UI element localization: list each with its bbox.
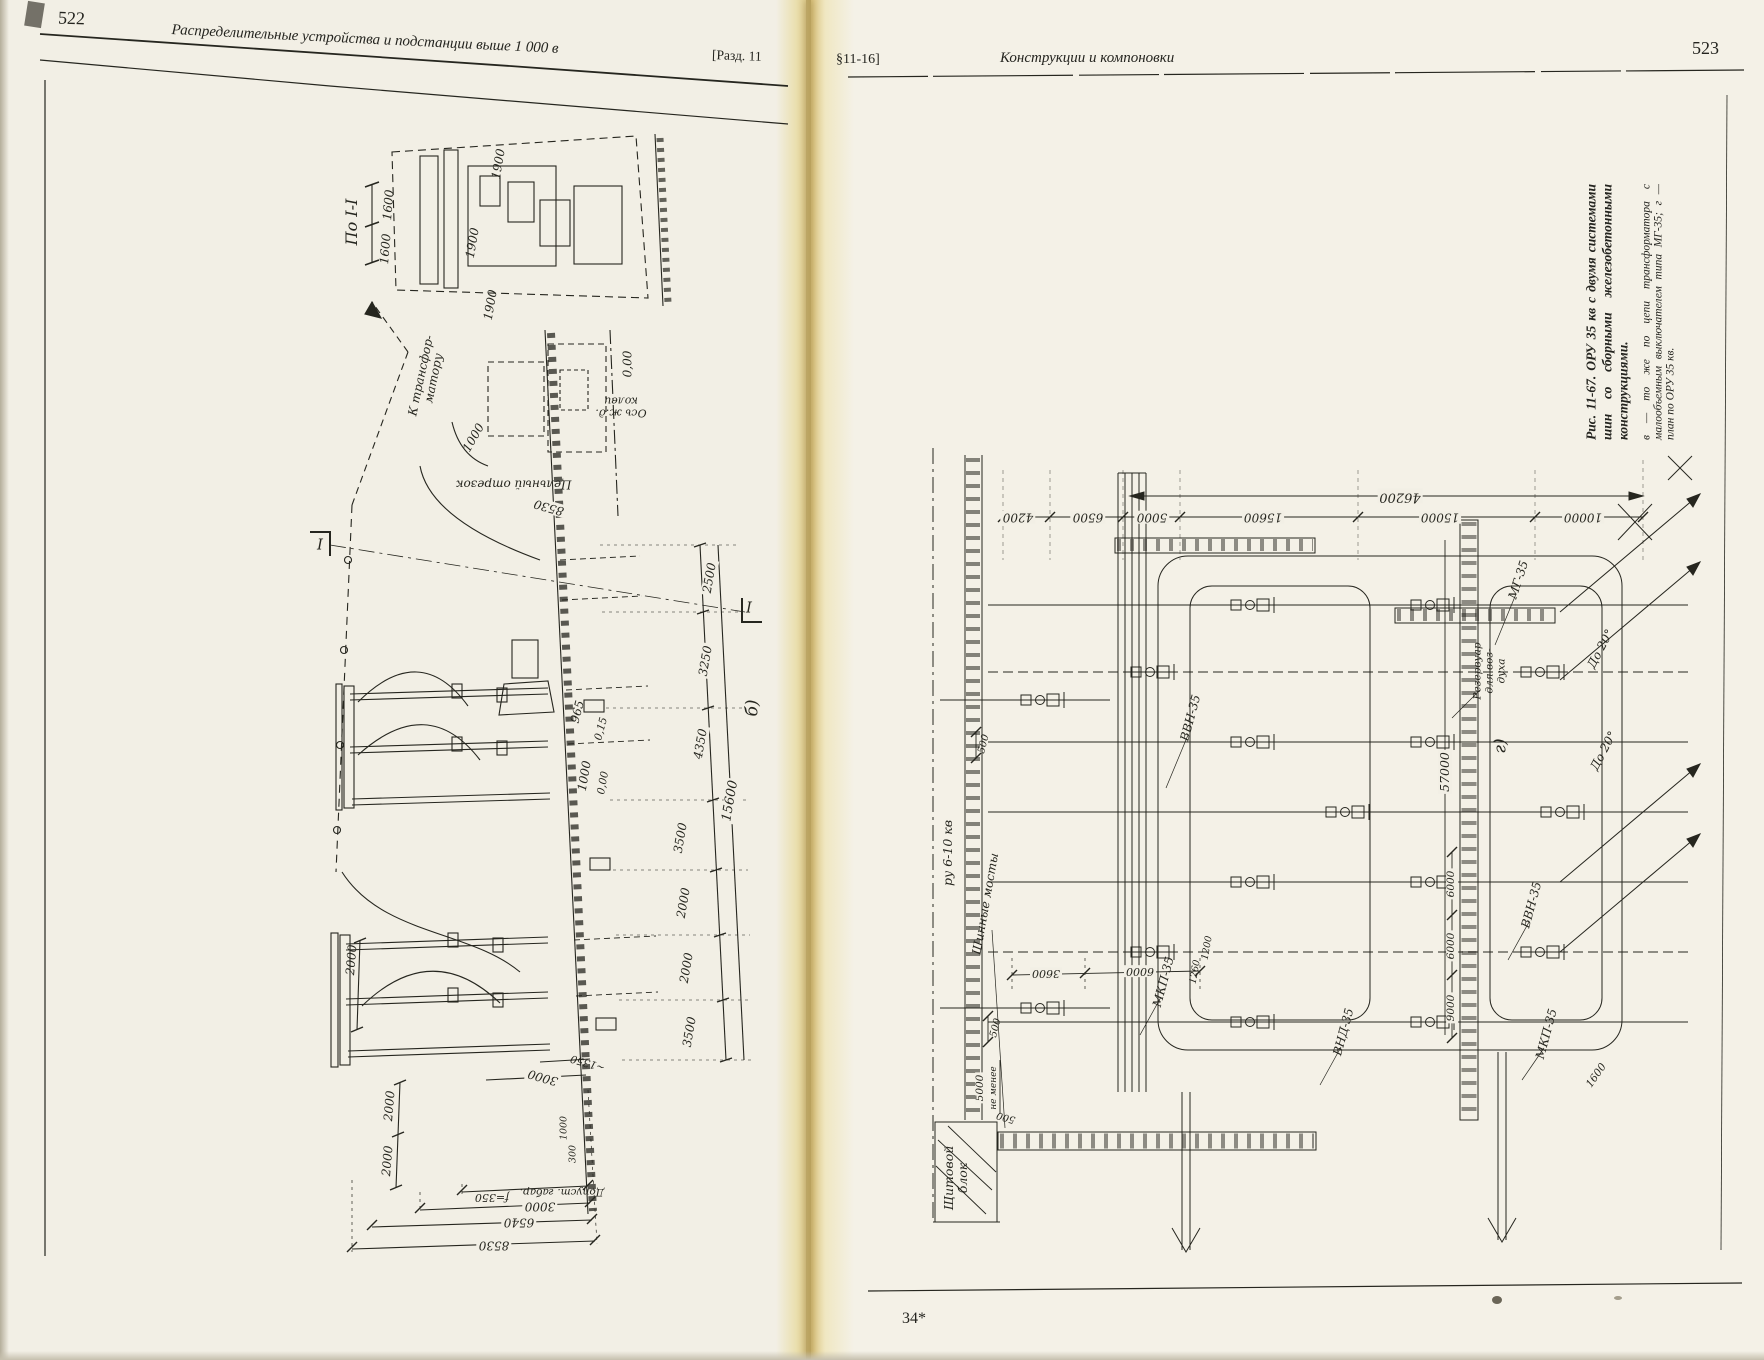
right-page-number: 523 — [1692, 38, 1719, 59]
building-label: ру 6-10 кв — [941, 820, 955, 886]
dim-note: не менее — [989, 1066, 999, 1109]
dim-label: 15600 — [1242, 510, 1284, 523]
figure-caption: Рис. 11-67. ОРУ 35 кв с двумя системами … — [1584, 184, 1677, 440]
part-label-g: г) — [1491, 738, 1510, 753]
scan-speck — [1492, 1296, 1502, 1304]
dim-label: 6500 — [1071, 510, 1106, 523]
dim-label: 2000 — [344, 944, 360, 976]
scan-edge-left — [0, 0, 9, 1360]
caption-main: Рис. 11-67. ОРУ 35 кв с двумя системами … — [1584, 184, 1632, 440]
dim-total-label: 46200 — [1377, 489, 1422, 504]
clearance-note: Допуст. габар. — [520, 1185, 605, 1197]
dim-label: 5000 — [1135, 510, 1170, 523]
scan-edge-bottom — [0, 1351, 1764, 1360]
book-gutter — [776, 0, 854, 1360]
caption-sub: в — то же по цепи трансформатора с малоо… — [1641, 184, 1677, 440]
dim-label: f=350 — [475, 1191, 509, 1203]
dim-label: 6000 — [1446, 869, 1458, 900]
dim-label: 10000 — [1562, 510, 1604, 523]
right-running-title: Конструкции и компоновки — [1000, 50, 1174, 67]
dim-label: 5000 — [975, 1073, 987, 1104]
view-label: По I-I — [343, 199, 361, 246]
dim-label: 6000 — [1446, 931, 1458, 962]
dim-label: 4200 — [1001, 510, 1036, 523]
dim-label: 9000 — [1446, 993, 1458, 1024]
dim-label: 8530 — [477, 1238, 512, 1251]
dim-total-label: 57000 — [1438, 750, 1452, 794]
section-mark: I — [746, 600, 752, 617]
level-mark: 0,00 — [621, 351, 634, 378]
dim-label: 1600 — [378, 233, 394, 265]
dim-label: 1600 — [381, 189, 397, 221]
right-section-ref: §11-16] — [836, 52, 880, 68]
left-page — [0, 0, 800, 1360]
left-page-number: 522 — [58, 8, 86, 30]
dim-label: 3000 — [523, 1199, 558, 1212]
dim-label: 1000 — [560, 1116, 571, 1140]
dim-label: 6540 — [502, 1215, 537, 1228]
dim-label: 2000 — [382, 1090, 398, 1122]
solid-section-note: Цельный отрезок — [456, 477, 571, 490]
scan-speck — [1614, 1296, 1622, 1300]
gutter-crease — [806, 0, 811, 1360]
rail-axis-note: Ось ж.д. колеи — [595, 394, 646, 419]
dim-label: 15000 — [1419, 510, 1461, 523]
dim-label: 300 — [569, 1145, 580, 1163]
printer-signature: 34* — [902, 1310, 926, 1328]
section-mark: I — [317, 537, 323, 554]
dim-label: 2000 — [380, 1145, 396, 1177]
panel-block-label: Щитовой блок — [942, 1146, 970, 1211]
air-tank-label: Резервуар для воз- духа — [1472, 642, 1507, 699]
dim-label: 3600 — [1030, 967, 1062, 979]
left-section-ref: [Разд. 11 — [712, 47, 762, 65]
part-label-b: б) — [743, 699, 762, 716]
dim-label: 6000 — [1124, 965, 1156, 977]
